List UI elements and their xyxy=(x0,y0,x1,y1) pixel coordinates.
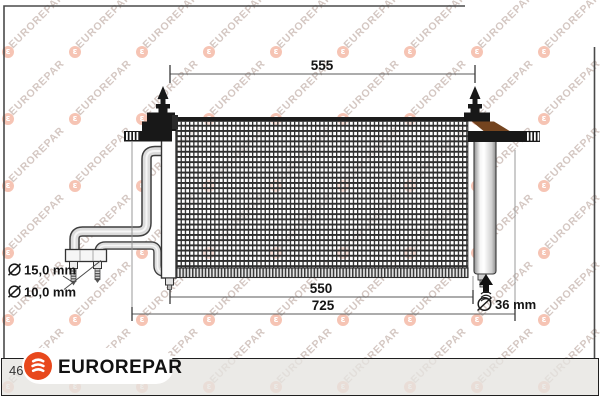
mounting-bracket-left xyxy=(124,86,178,142)
left-tank-fitting xyxy=(166,278,174,290)
pipe-large-annotation: 15,0 mm xyxy=(9,263,77,284)
core-top-plate xyxy=(176,117,468,122)
bottom-tube xyxy=(172,268,468,278)
logo-e-icon xyxy=(24,352,52,380)
dimension-555: 555 xyxy=(170,58,475,83)
brand-name: EUROREPAR xyxy=(58,357,183,379)
eurorepar-logo xyxy=(24,352,52,380)
diameter-icon xyxy=(9,286,21,297)
drier-diameter-value: 36 mm xyxy=(495,297,536,312)
pipe-large-value: 15,0 mm xyxy=(24,263,76,278)
dim-total-value: 725 xyxy=(312,298,335,313)
mounting-pin-right xyxy=(470,86,481,99)
inlet-pipe xyxy=(75,151,164,253)
mounting-pin-left xyxy=(158,86,169,99)
dim-core-value: 550 xyxy=(310,281,333,296)
drier-diameter-annotation: 36 mm xyxy=(478,274,537,312)
catalog-page: εEUROREPARεEUROREPARεEUROREPARεEUROREPAR… xyxy=(0,0,600,400)
left-tank xyxy=(162,124,177,278)
diameter-icon xyxy=(9,264,21,275)
core-mesh xyxy=(176,122,468,269)
receiver-drier xyxy=(474,137,496,287)
dim-top-value: 555 xyxy=(311,58,334,73)
condenser-drawing: 555 550 725 xyxy=(0,0,600,360)
stud-small xyxy=(94,262,102,284)
mounting-bracket-right xyxy=(464,86,540,142)
logo-circle-bg xyxy=(24,352,52,380)
